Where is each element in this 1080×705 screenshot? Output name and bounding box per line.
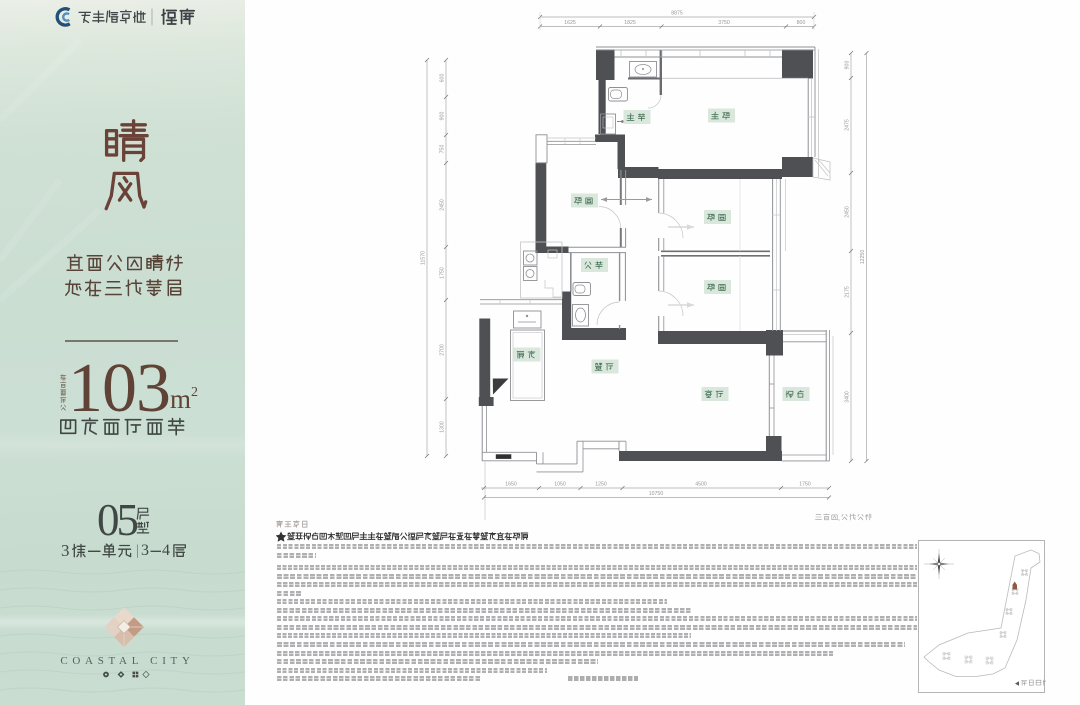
svg-text:800: 800 <box>797 20 806 26</box>
svg-text:900: 900 <box>845 61 851 70</box>
svg-text:1825: 1825 <box>624 20 636 26</box>
svg-text:2475: 2475 <box>845 119 851 131</box>
svg-text:2450: 2450 <box>845 206 851 218</box>
svg-text:2175: 2175 <box>845 286 851 298</box>
svg-text:,: , <box>838 515 840 522</box>
svg-text:750: 750 <box>440 145 446 154</box>
svg-text:1650: 1650 <box>505 482 517 488</box>
svg-text:1250: 1250 <box>595 482 607 488</box>
svg-text:3400: 3400 <box>845 391 851 403</box>
svg-text:2700: 2700 <box>440 344 446 356</box>
svg-text:1625: 1625 <box>564 20 576 26</box>
svg-text:1050: 1050 <box>554 482 566 488</box>
svg-text:1750: 1750 <box>440 267 446 279</box>
svg-text:2450: 2450 <box>440 199 446 211</box>
svg-text:600: 600 <box>440 74 446 83</box>
svg-text:1750: 1750 <box>799 482 811 488</box>
svg-text:12250: 12250 <box>860 250 866 265</box>
svg-text:3750: 3750 <box>718 20 730 26</box>
svg-text:10750: 10750 <box>649 491 664 497</box>
svg-text:8875: 8875 <box>671 11 683 17</box>
svg-text:4500: 4500 <box>695 482 707 488</box>
svg-text:900: 900 <box>440 112 446 121</box>
svg-text:11570: 11570 <box>421 251 427 265</box>
svg-text:1300: 1300 <box>440 421 446 433</box>
